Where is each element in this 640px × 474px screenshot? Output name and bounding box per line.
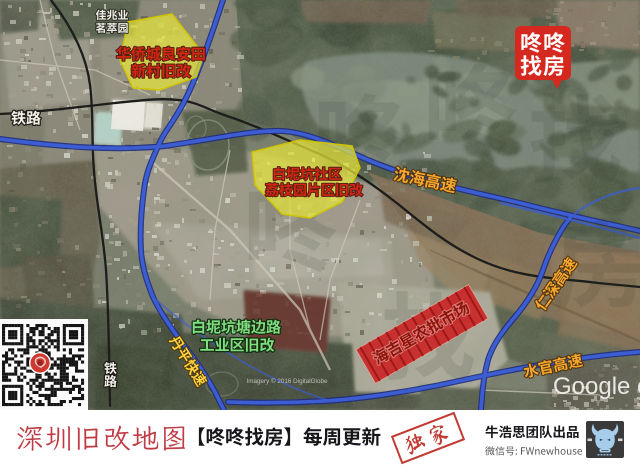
svg-text:Imagery © 2016 DigitalGlobe: Imagery © 2016 DigitalGlobe: [247, 377, 328, 385]
svg-text:Google e: Google e: [553, 373, 640, 400]
